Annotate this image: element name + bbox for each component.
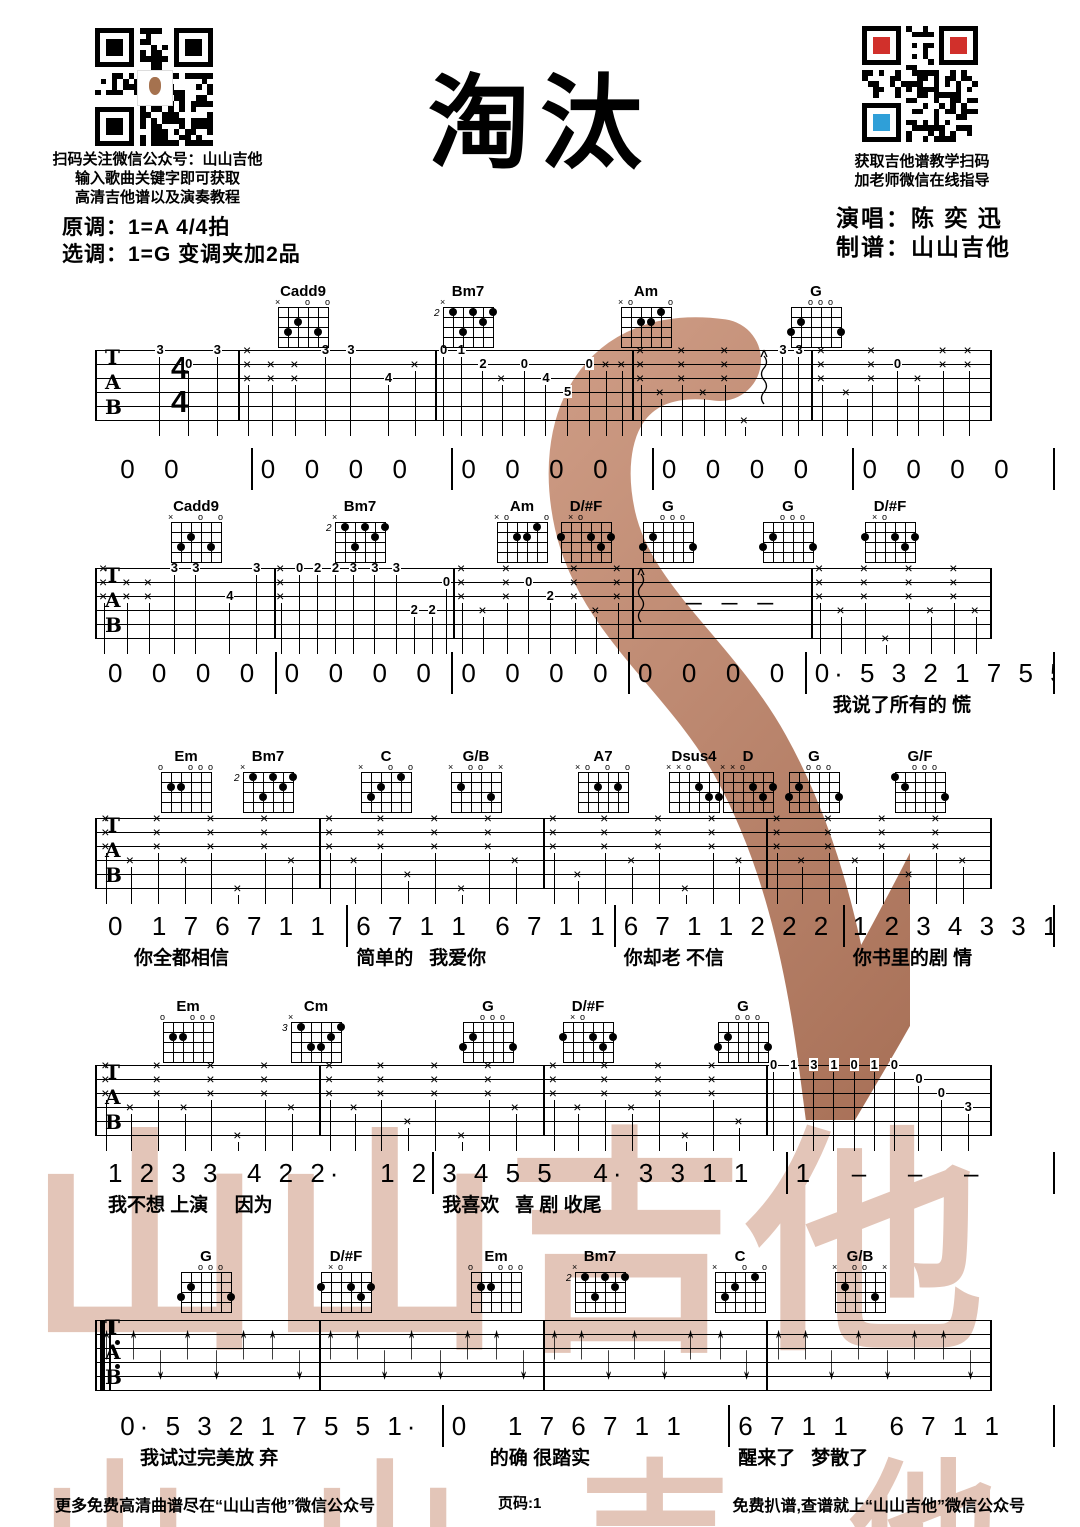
tab-mute-mark: ×	[325, 825, 333, 839]
open-string-mark: o	[828, 298, 833, 307]
chord-markers: ×oo	[497, 513, 550, 522]
strum-down-arrow: ↓	[212, 1336, 221, 1385]
qr-module	[912, 54, 918, 60]
chord-grid	[361, 772, 412, 813]
open-string-mark: o	[932, 763, 937, 772]
chord-name: C	[712, 1248, 768, 1263]
chord-finger-dot	[294, 318, 302, 326]
note-stem	[909, 603, 910, 654]
jianpu-notes: 0 0 0 0	[277, 652, 454, 694]
note-stem	[969, 371, 970, 436]
chord-grid	[791, 307, 842, 348]
note-stem	[918, 1086, 919, 1151]
chord-finger-dot	[337, 1023, 345, 1031]
tab-fret-number: 3	[392, 561, 401, 574]
repeat-sign-dot	[115, 1340, 120, 1345]
tab-mute-mark: ×	[904, 589, 912, 603]
chord-name: Bm7	[572, 1248, 628, 1263]
chord-finger-dot	[769, 783, 777, 791]
chord-finger-dot	[314, 328, 322, 336]
chord-markers: ×o	[321, 1263, 374, 1272]
tab-mute-mark: ×	[600, 1086, 608, 1100]
muted-string-mark: ×	[568, 513, 573, 522]
chord-finger-dot	[259, 793, 267, 801]
jianpu-lyric: 我不想 上演 因为	[100, 1194, 434, 1218]
tab-mute-mark: ×	[570, 575, 578, 589]
tab-mute-mark: ×	[878, 839, 886, 853]
note-stem	[185, 867, 186, 904]
tab-clef-letter: T	[105, 347, 120, 367]
chord-diagram: Gooo	[760, 498, 816, 563]
chord-name: D/#F	[318, 1248, 374, 1263]
tab-mute-mark: ×	[180, 853, 188, 867]
tab-mute-mark: ×	[350, 1100, 358, 1114]
note-stem	[813, 1072, 814, 1151]
note-stem	[524, 371, 525, 436]
staff-barline	[238, 350, 240, 421]
qr-module	[906, 87, 912, 93]
chord-name: D/#F	[560, 998, 616, 1013]
chord-finger-dot	[249, 773, 257, 781]
staff-barline	[632, 350, 634, 421]
jianpu-row: 0 00 0 0 00 0 0 00 0 0 00 0 0 0	[100, 448, 1055, 490]
open-string-mark: o	[388, 763, 393, 772]
chord-grid	[163, 1022, 214, 1063]
chord-finger-dot	[795, 783, 803, 791]
open-string-mark: o	[188, 763, 193, 772]
chord-finger-dot	[891, 773, 899, 781]
chord-name: G/B	[448, 748, 504, 763]
tab-fret-number: 0	[585, 357, 594, 370]
chord-markers: ooo	[791, 298, 844, 307]
staff-barline	[95, 568, 97, 639]
note-stem	[578, 1114, 579, 1151]
note-stem	[104, 603, 105, 654]
note-stem	[149, 603, 150, 654]
tab-mute-mark: ×	[570, 561, 578, 575]
note-stem	[435, 853, 436, 904]
chord-finger-dot	[601, 1273, 609, 1281]
note-stem	[211, 1100, 212, 1151]
qr-module	[972, 98, 978, 104]
chord-name: D	[720, 748, 776, 763]
note-stem	[131, 1114, 132, 1151]
note-stem	[256, 575, 257, 654]
chord-finger-dot	[837, 328, 845, 336]
chord-name: Dsus4	[666, 748, 722, 763]
note-stem	[330, 1100, 331, 1151]
open-string-mark: o	[325, 298, 330, 307]
staff-barline	[990, 818, 992, 889]
note-stem	[894, 1072, 895, 1151]
chord-markers: oooo	[163, 1013, 216, 1022]
note-stem	[976, 617, 977, 654]
muted-string-mark: ×	[572, 1263, 577, 1272]
note-stem	[589, 371, 590, 436]
tab-mute-mark: ×	[931, 811, 939, 825]
open-string-mark: o	[478, 763, 483, 772]
note-stem	[606, 371, 607, 436]
muted-string-mark: ×	[712, 1263, 717, 1272]
chord-finger-dot	[705, 793, 713, 801]
tab-mute-mark: ×	[153, 1072, 161, 1086]
chord-diagram: Emoooo	[158, 748, 214, 813]
note-stem	[883, 853, 884, 904]
chord-finger-dot	[731, 1283, 739, 1291]
note-stem	[943, 371, 944, 436]
tab-fret-number: 3	[809, 1058, 818, 1071]
tab-mute-mark: ×	[842, 385, 850, 399]
chord-finger-dot	[695, 783, 703, 791]
qr-module	[923, 103, 929, 109]
tab-mute-mark: ×	[101, 839, 109, 853]
tab-mute-mark: ×	[817, 371, 825, 385]
muted-string-mark: ×	[618, 298, 623, 307]
chord-markers: ×o	[561, 513, 614, 522]
chord-diagram: Bm7×2	[240, 748, 296, 813]
open-string-mark: o	[660, 513, 665, 522]
note-stem	[704, 399, 705, 436]
sustain-dash: —	[757, 596, 773, 612]
note-stem	[396, 575, 397, 654]
note-stem	[443, 357, 444, 436]
staff-barline	[990, 1320, 992, 1391]
note-stem	[272, 385, 273, 436]
tab-mute-mark: ×	[824, 811, 832, 825]
open-string-mark: o	[508, 1263, 513, 1272]
chord-finger-dot	[557, 533, 565, 541]
qr-module	[967, 87, 973, 93]
qr-module	[162, 45, 168, 51]
chord-name: D/#F	[558, 498, 614, 513]
tab-mute-mark: ×	[122, 589, 130, 603]
note-stem	[408, 881, 409, 904]
staff-barline	[632, 568, 634, 639]
note-stem	[238, 1142, 239, 1151]
staff-barline	[811, 568, 813, 639]
qr-module	[928, 32, 934, 38]
tab-fret-number: 0	[850, 1058, 859, 1071]
note-stem	[281, 603, 282, 654]
chord-name: Am	[618, 283, 674, 298]
open-string-mark: o	[408, 763, 413, 772]
time-signature: 4	[171, 386, 188, 417]
tab-mute-mark: ×	[206, 839, 214, 853]
staff-barline	[766, 1065, 768, 1136]
jianpu-notes: 0 0 0 0	[253, 448, 454, 490]
arranger-credit: 制谱：山山吉他	[836, 233, 1011, 262]
open-string-mark: o	[158, 763, 163, 772]
tab-fret-number: 1	[870, 1058, 879, 1071]
open-string-mark: o	[826, 763, 831, 772]
chord-grid	[563, 1022, 614, 1063]
jianpu-measure: 3 4 5 5 4· 3 3 1 1我喜欢 喜 剧 收尾	[434, 1152, 787, 1218]
tab-mute-mark: ×	[457, 575, 465, 589]
jianpu-notes: 1 2 3 4 3 3 1· 1	[845, 905, 1055, 947]
tab-mute-mark: ×	[403, 1114, 411, 1128]
tab-mute-mark: ×	[101, 1086, 109, 1100]
note-stem	[127, 603, 128, 654]
chord-diagram: D/#F×o	[558, 498, 614, 563]
chord-markers: ×oo×	[451, 763, 504, 772]
open-string-mark: o	[790, 513, 795, 522]
jianpu-measure: 0 0 0 0	[453, 448, 654, 490]
tab-mute-mark: ×	[549, 839, 557, 853]
qr-module	[174, 140, 180, 146]
chord-finger-dot	[649, 533, 657, 541]
singer-credit: 演唱：陈 奕 迅	[836, 204, 1011, 233]
tab-mute-mark: ×	[931, 839, 939, 853]
strum-down-arrow: ↓	[966, 1336, 975, 1385]
chord-finger-dot	[714, 1043, 722, 1051]
note-stem	[502, 385, 503, 436]
open-string-mark: o	[198, 513, 203, 522]
chord-diagram: Cm×3	[288, 998, 344, 1063]
muted-string-mark: ×	[358, 763, 363, 772]
tab-mute-mark: ×	[99, 575, 107, 589]
qr-module	[917, 109, 923, 115]
tab-mute-mark: ×	[549, 1058, 557, 1072]
strum-down-arrow: ↓	[436, 1336, 445, 1385]
strum-up-arrow: ↑	[492, 1316, 501, 1365]
tab-mute-mark: ×	[267, 357, 275, 371]
chord-finger-dot	[367, 793, 375, 801]
note-stem	[414, 617, 415, 654]
tab-mute-mark: ×	[720, 357, 728, 371]
chord-markers: ×ooo	[578, 763, 631, 772]
chord-finger-dot	[179, 1033, 187, 1041]
tab-mute-mark: ×	[260, 1086, 268, 1100]
tab-mute-mark: ×	[681, 1128, 689, 1142]
chord-markers: ×	[335, 513, 388, 522]
note-stem	[618, 603, 619, 654]
tab-staff: TAB44303×××××××334×012×0450×××××××××××××…	[95, 350, 992, 421]
qr-module	[950, 136, 956, 142]
tab-mute-mark: ×	[478, 603, 486, 617]
chord-finger-dot	[621, 1273, 629, 1281]
strum-up-arrow: ↑	[686, 1316, 695, 1365]
note-stem	[299, 575, 300, 654]
tab-mute-mark: ×	[290, 357, 298, 371]
note-stem	[739, 867, 740, 904]
jianpu-measure: 0 0 0 0	[100, 652, 277, 718]
open-string-mark: o	[480, 1013, 485, 1022]
note-stem	[317, 575, 318, 654]
chord-finger-dot	[479, 318, 487, 326]
tab-mute-mark: ×	[267, 371, 275, 385]
tab-staff: TAB×××××××××××××××××××××××××××××××××××××…	[95, 1065, 992, 1136]
tab-staff: TAB×××××××××××××××××××××××××××××××××××××…	[95, 818, 992, 889]
note-stem	[686, 1142, 687, 1151]
muted-string-mark: ×	[832, 1263, 837, 1272]
tab-mute-mark: ×	[860, 589, 868, 603]
note-stem	[554, 1100, 555, 1151]
chord-diagram: A7×ooo	[575, 748, 631, 813]
jianpu-measure: 0 0 0 0	[630, 652, 807, 718]
tab-mute-mark: ×	[600, 839, 608, 853]
chord-finger-dot	[177, 1293, 185, 1301]
jianpu-notes: 1 – – –	[788, 1152, 1055, 1194]
chord-finger-dot	[647, 318, 655, 326]
chord-grid	[763, 522, 814, 563]
play-key: 选调：1=G 变调夹加2品	[62, 241, 301, 268]
sustain-dash: —	[722, 596, 738, 612]
open-string-mark: o	[305, 298, 310, 307]
staff-barline	[319, 1065, 321, 1136]
chord-markers: ×o	[865, 513, 918, 522]
chord-finger-dot	[597, 543, 605, 551]
chord-markers: ×	[291, 1013, 344, 1022]
muted-string-mark: ×	[332, 513, 337, 522]
chord-finger-dot	[317, 1043, 325, 1051]
tab-mute-mark: ×	[824, 825, 832, 839]
chord-finger-dot	[327, 1033, 335, 1041]
chord-finger-dot	[785, 793, 793, 801]
chord-grid	[497, 522, 548, 563]
qr-module	[879, 87, 885, 93]
note-stem	[188, 371, 189, 436]
chord-diagram: Gooo	[640, 498, 696, 563]
tab-mute-mark: ×	[410, 357, 418, 371]
tab-clef-letter: T	[105, 565, 120, 585]
tab-mute-mark: ×	[260, 811, 268, 825]
chord-grid: 2	[443, 307, 494, 348]
tab-mute-mark: ×	[511, 1100, 519, 1114]
chord-finger-dot	[367, 1283, 375, 1291]
chord-finger-dot	[279, 783, 287, 791]
qr-module	[179, 107, 185, 113]
tab-mute-mark: ×	[851, 853, 859, 867]
arpeggio-squiggle	[759, 348, 769, 421]
footer-page-number: 页码:1	[498, 1492, 541, 1513]
tab-mute-mark: ×	[699, 385, 707, 399]
open-string-mark: o	[500, 1013, 505, 1022]
chord-finger-dot	[371, 533, 379, 541]
note-stem	[374, 575, 375, 654]
tab-mute-mark: ×	[287, 853, 295, 867]
note-stem	[941, 1100, 942, 1151]
chord-finger-dot	[841, 1283, 849, 1291]
tab-fret-number: 0	[184, 357, 193, 370]
qr-module	[207, 140, 213, 146]
muted-string-mark: ×	[570, 1013, 575, 1022]
open-string-mark: o	[862, 1263, 867, 1272]
note-stem	[605, 1100, 606, 1151]
qr-module	[945, 81, 951, 87]
chord-finger-dot	[207, 543, 215, 551]
note-stem	[516, 1114, 517, 1151]
qr-module	[912, 98, 918, 104]
tab-mute-mark: ×	[457, 589, 465, 603]
footer-left: 更多免费高清曲谱尽在“山山吉他”微信公众号	[55, 1492, 375, 1516]
tab-mute-mark: ×	[511, 853, 519, 867]
chord-markers: ×oo	[715, 1263, 768, 1272]
chord-diagram: D××o	[720, 748, 776, 813]
tab-clef-letter: B	[105, 1367, 122, 1387]
note-stem	[632, 867, 633, 904]
tab-mute-mark: ×	[126, 1100, 134, 1114]
note-stem	[659, 1100, 660, 1151]
muted-string-mark: ×	[872, 513, 877, 522]
chord-finger-dot	[357, 1293, 365, 1301]
tab-mute-mark: ×	[376, 811, 384, 825]
qr-center-logo	[137, 70, 173, 106]
open-string-mark: o	[686, 763, 691, 772]
chord-finger-dot	[227, 1293, 235, 1301]
chord-finger-dot	[891, 533, 899, 541]
chord-markers: ooo	[463, 1013, 516, 1022]
arpeggio-squiggle	[636, 566, 646, 639]
tab-mute-mark: ×	[734, 853, 742, 867]
note-stem	[782, 357, 783, 436]
tab-fret-number: 0	[442, 575, 451, 588]
tab-fret-number: 0	[520, 357, 529, 370]
tab-mute-mark: ×	[243, 371, 251, 385]
open-string-mark: o	[210, 1013, 215, 1022]
tab-mute-mark: ×	[457, 1128, 465, 1142]
tab-mute-mark: ×	[153, 825, 161, 839]
chord-markers: ooo	[181, 1263, 234, 1272]
chord-diagram: Cadd9×oo	[168, 498, 224, 563]
tab-fret-number: 3	[346, 343, 355, 356]
qr-module	[174, 73, 180, 79]
tab-mute-mark: ×	[126, 853, 134, 867]
chord-finger-dot	[581, 1273, 589, 1281]
tab-mute-mark: ×	[325, 1086, 333, 1100]
qr-code	[95, 28, 213, 146]
tab-fret-number: 0	[893, 357, 902, 370]
strum-down-arrow: ↓	[742, 1336, 751, 1385]
tab-mute-mark: ×	[570, 589, 578, 603]
note-stem	[798, 357, 799, 436]
chord-diagram: C×oo	[712, 1248, 768, 1313]
chord-markers: ×	[575, 1263, 628, 1272]
open-string-mark: o	[745, 1013, 750, 1022]
qr-module	[873, 92, 879, 98]
jianpu-lyric: 我喜欢 喜 剧 收尾	[434, 1194, 787, 1218]
qr-module	[140, 140, 146, 146]
chord-diagram: Gooo	[715, 998, 771, 1063]
tab-mute-mark: ×	[613, 561, 621, 575]
tab-mute-mark: ×	[101, 1072, 109, 1086]
tab-fret-number: 2	[313, 561, 322, 574]
note-stem	[856, 867, 857, 904]
note-stem	[158, 1100, 159, 1151]
qr-module	[928, 43, 934, 49]
tab-mute-mark: ×	[878, 825, 886, 839]
left-qr-caption-line3: 高清吉他谱以及演奏教程	[40, 188, 275, 207]
jianpu-measure: 0 0	[100, 448, 253, 490]
jianpu-lyric: 你书里的剧 情	[845, 947, 1055, 971]
note-stem	[854, 1072, 855, 1151]
tab-mute-mark: ×	[144, 589, 152, 603]
strum-down-arrow: ↓	[604, 1336, 613, 1385]
chord-diagram: Bm7×2	[572, 1248, 628, 1313]
tab-clef-letter: B	[105, 1112, 122, 1132]
tab-mute-mark: ×	[600, 811, 608, 825]
note-stem	[350, 357, 351, 436]
tab-mute-mark: ×	[949, 561, 957, 575]
tab-mute-mark: ×	[350, 853, 358, 867]
note-stem	[353, 575, 354, 654]
credits: 演唱：陈 奕 迅 制谱：山山吉他	[836, 204, 1011, 262]
note-stem	[847, 399, 848, 436]
chord-finger-dot	[724, 1033, 732, 1041]
jianpu-notes: 0 0 0 0	[630, 652, 807, 694]
chord-grid	[578, 772, 629, 813]
chord-finger-dot	[307, 1043, 315, 1051]
tab-mute-mark: ×	[573, 1100, 581, 1114]
